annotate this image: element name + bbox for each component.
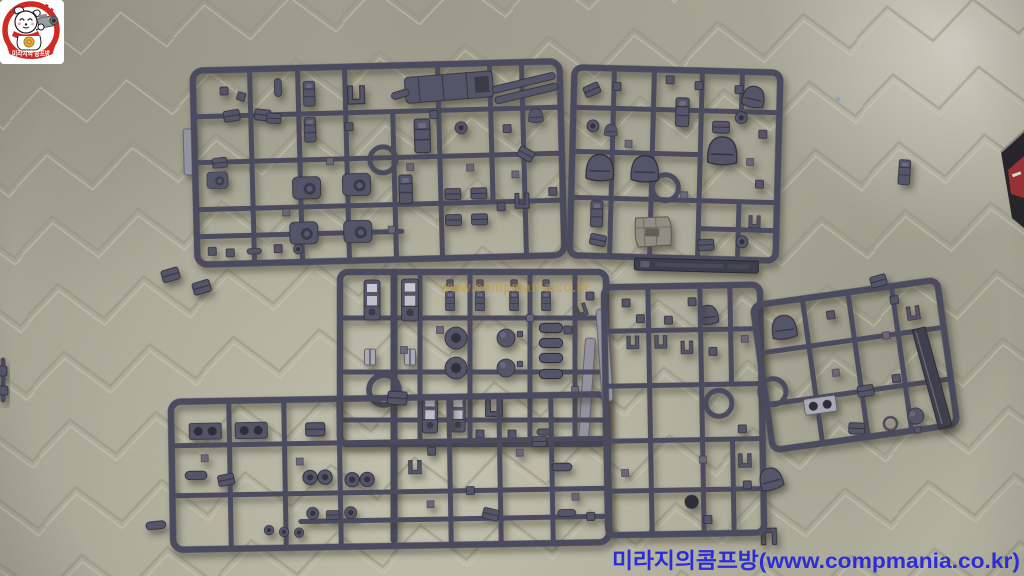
photo-canvas: www.compmania.co.kr 미라지의콤프방(www.compmani…	[0, 0, 1024, 576]
photo-model-kit-sprues: www.compmania.co.kr 미라지의콤프방(www.compmani…	[0, 0, 1024, 576]
logo-banner-text: 미라지의 콤프방	[12, 49, 50, 58]
mascot-logo: 미라지의 콤프방	[0, 0, 64, 64]
mascot-medal	[24, 37, 34, 47]
center-watermark: www.compmania.co.kr	[439, 279, 590, 296]
bottom-watermark: 미라지의콤프방(www.compmania.co.kr)	[612, 549, 1020, 573]
